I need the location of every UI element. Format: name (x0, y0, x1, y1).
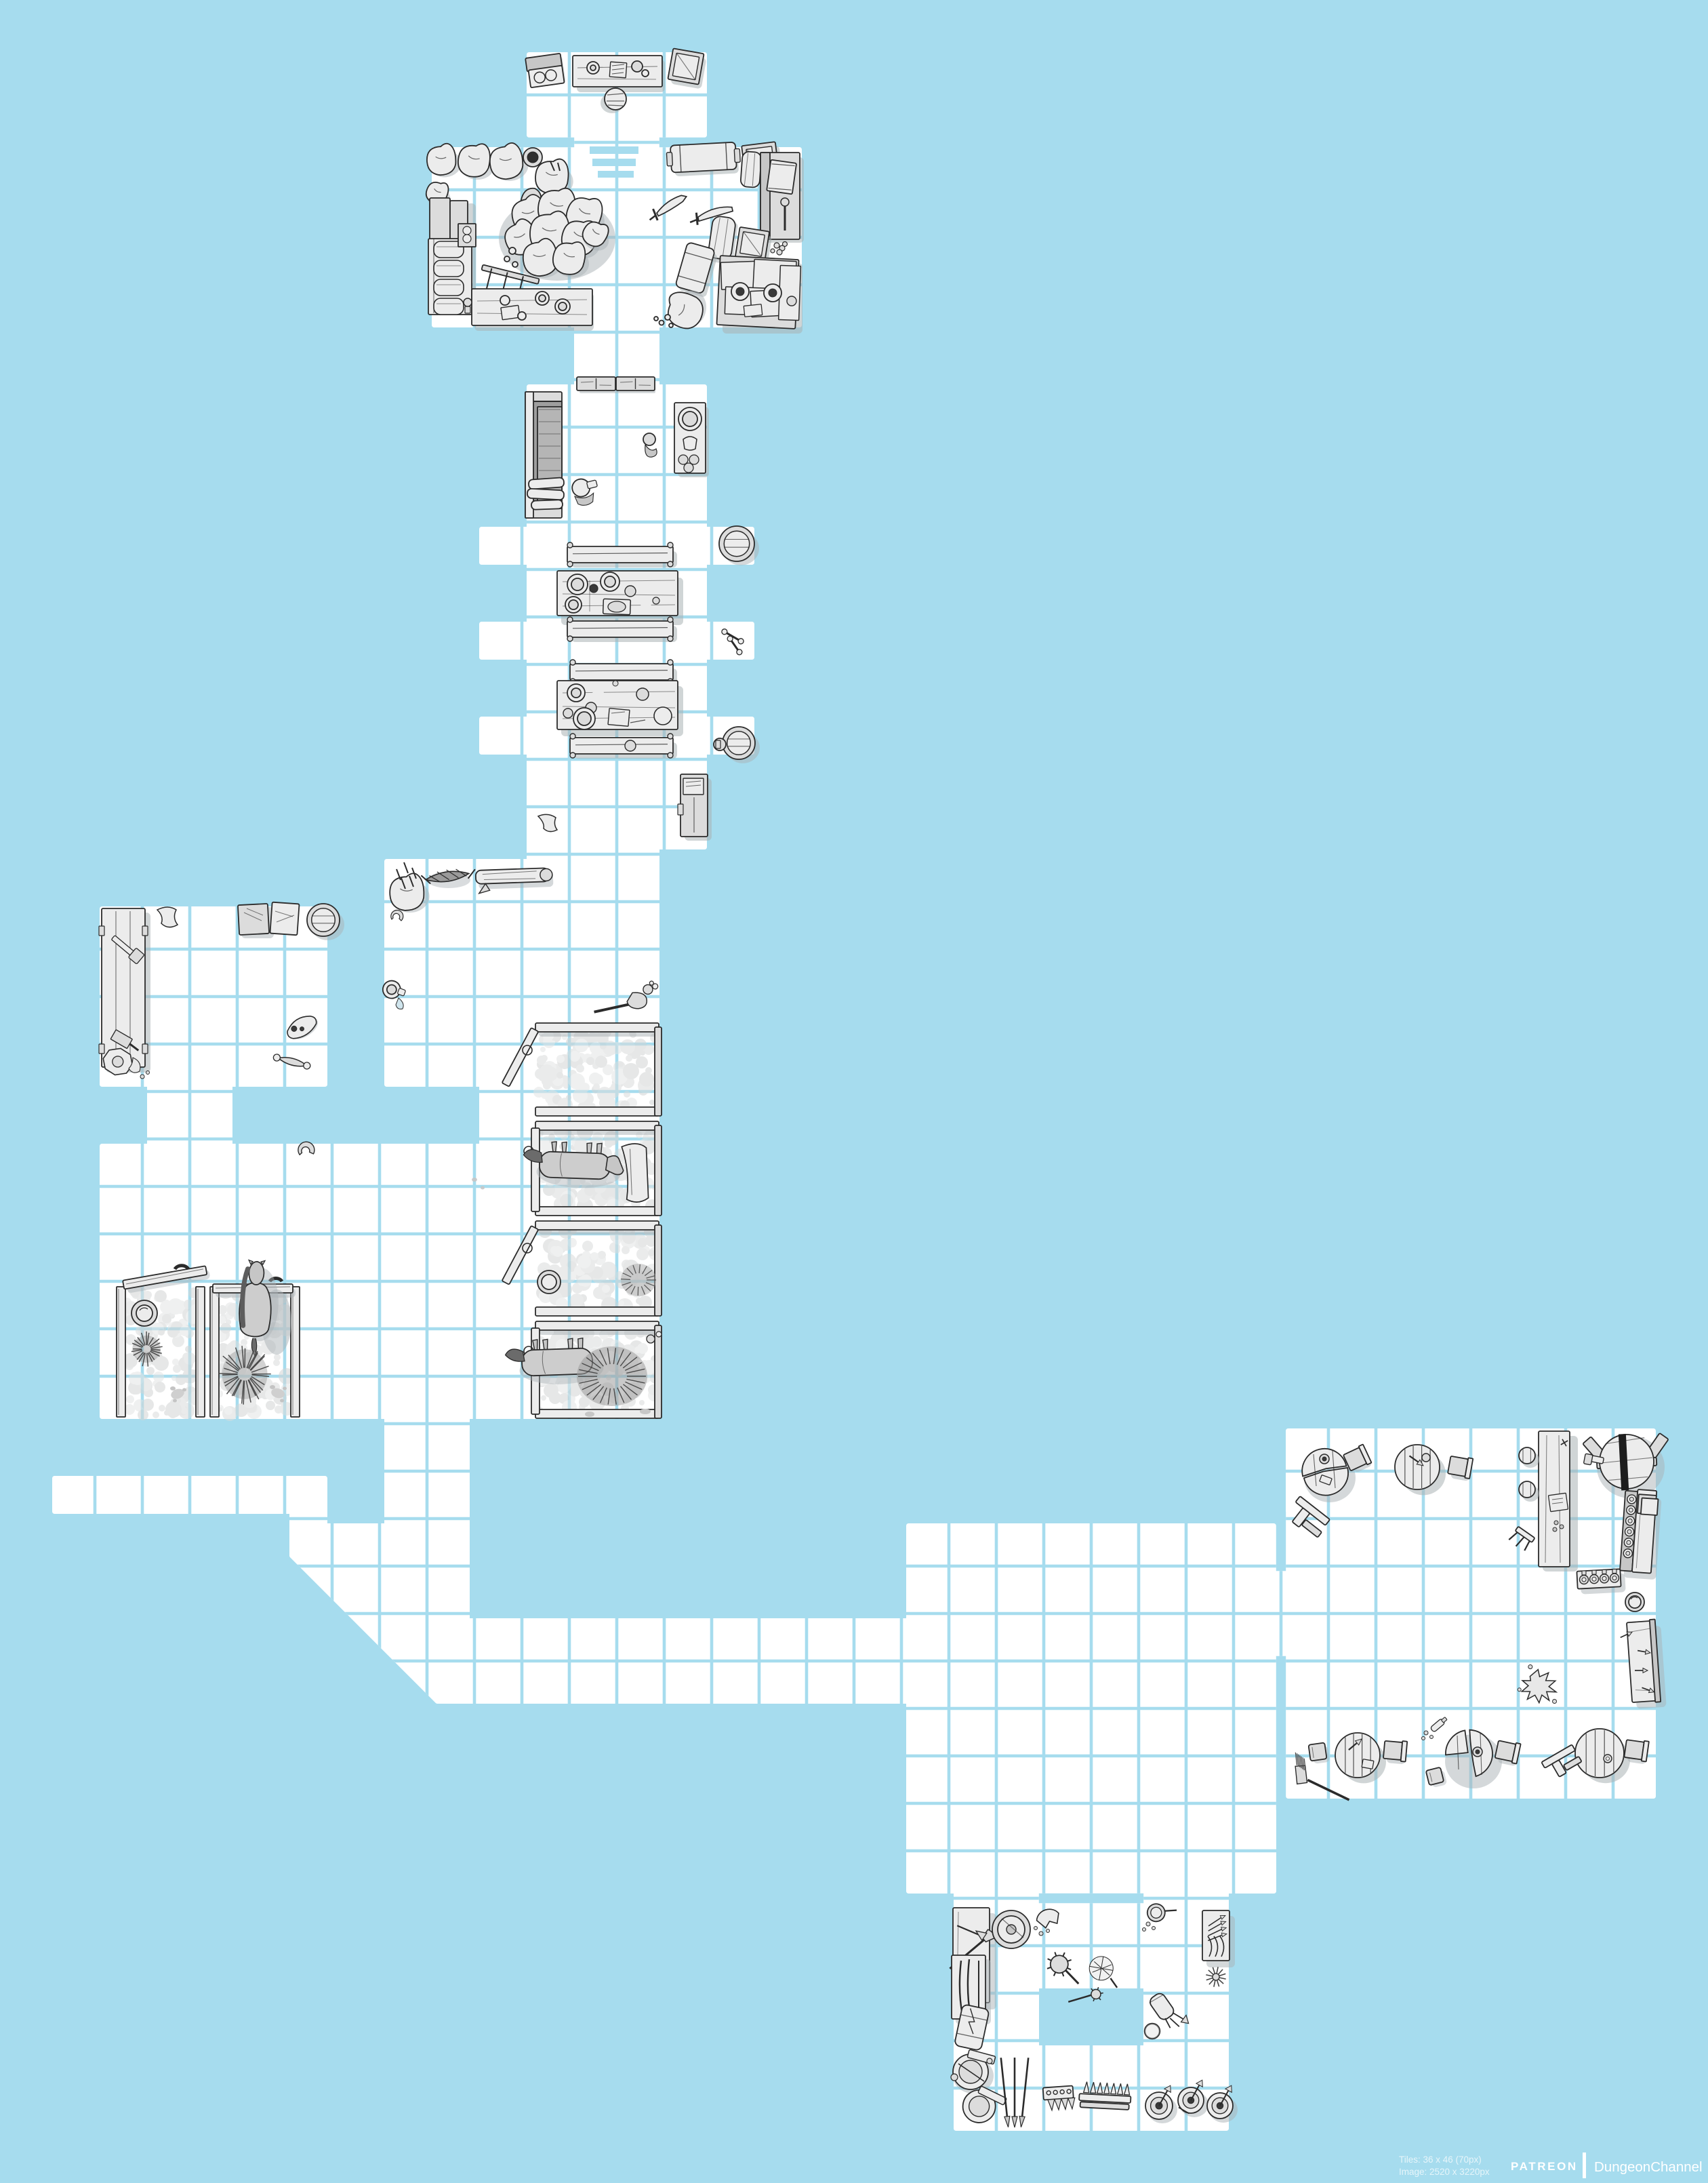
svg-text:DungeonChannel: DungeonChannel (1594, 2159, 1703, 2175)
svg-text:Tiles: 36 x 46 (70px): Tiles: 36 x 46 (70px) (1399, 2155, 1482, 2165)
svg-text:PATREON: PATREON (1511, 2160, 1578, 2173)
svg-text:Image: 2520 x 3220px: Image: 2520 x 3220px (1399, 2167, 1490, 2177)
